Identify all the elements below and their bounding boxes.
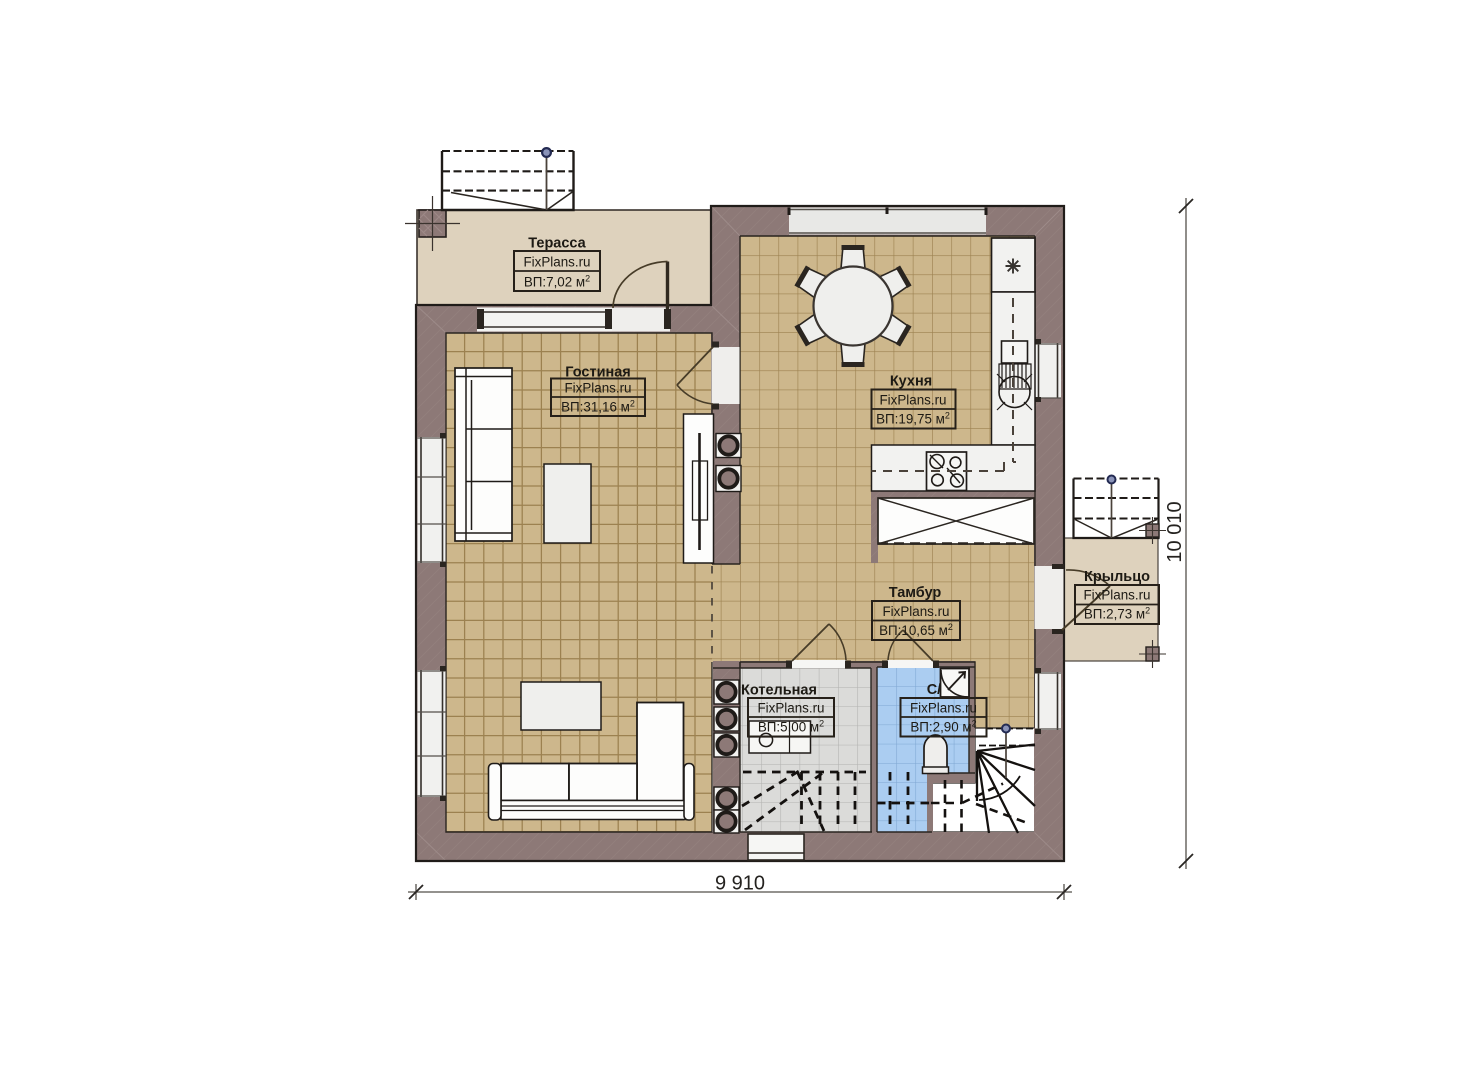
svg-text:ВП:2,73 м2: ВП:2,73 м2 <box>1084 606 1150 622</box>
svg-text:ВП:10,65 м2: ВП:10,65 м2 <box>879 622 953 638</box>
svg-text:10 010: 10 010 <box>1164 501 1186 562</box>
svg-text:Кухня: Кухня <box>890 374 932 390</box>
svg-text:Крыльцо: Крыльцо <box>1084 569 1150 585</box>
svg-text:FixPlans.ru: FixPlans.ru <box>1084 588 1151 603</box>
svg-text:ВП:31,16 м2: ВП:31,16 м2 <box>561 399 635 415</box>
svg-text:ВП:5,00 м2: ВП:5,00 м2 <box>758 719 824 735</box>
svg-text:FixPlans.ru: FixPlans.ru <box>565 381 632 396</box>
svg-text:FixPlans.ru: FixPlans.ru <box>880 393 947 408</box>
svg-text:FixPlans.ru: FixPlans.ru <box>524 255 591 270</box>
svg-text:Котельная: Котельная <box>741 683 817 699</box>
svg-text:Тамбур: Тамбур <box>889 585 942 601</box>
svg-text:FixPlans.ru: FixPlans.ru <box>758 701 825 716</box>
svg-text:Терасса: Терасса <box>528 236 586 252</box>
svg-text:9 910: 9 910 <box>715 873 765 895</box>
svg-text:ВП:2,90 м2: ВП:2,90 м2 <box>910 719 976 735</box>
svg-text:ВП:19,75 м2: ВП:19,75 м2 <box>876 411 950 427</box>
svg-text:ВП:7,02 м2: ВП:7,02 м2 <box>524 274 590 290</box>
svg-text:FixPlans.ru: FixPlans.ru <box>883 604 950 619</box>
svg-text:FixPlans.ru: FixPlans.ru <box>910 701 977 716</box>
